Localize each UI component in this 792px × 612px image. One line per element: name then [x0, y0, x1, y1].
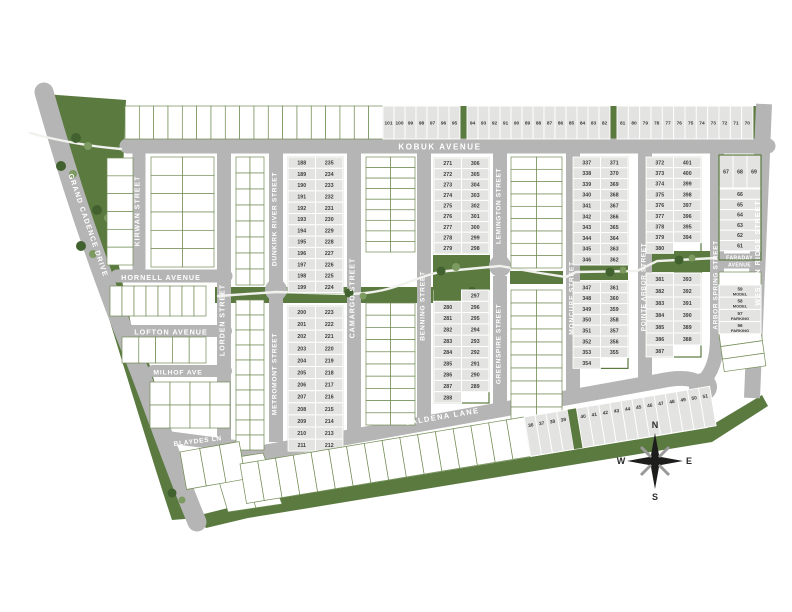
lot: [511, 394, 537, 407]
lot-use: PARKING: [731, 328, 749, 333]
street-label-dunkirk: DUNKIRK RIVER STREET: [272, 172, 279, 266]
lot: [366, 364, 391, 376]
lot-number: 230: [325, 217, 334, 223]
lot: [107, 194, 133, 212]
compass-w: W: [617, 456, 626, 466]
lot: [511, 303, 537, 316]
lot-number: 201: [297, 322, 306, 328]
lot-number: 351: [582, 329, 591, 335]
lot: [236, 330, 250, 345]
lot-number: 375: [655, 192, 664, 198]
lot: [240, 106, 254, 139]
lot: [250, 237, 264, 253]
lot-number: 208: [297, 407, 306, 413]
lot-number: 216: [325, 395, 334, 401]
unlabeled-block: [107, 158, 133, 265]
lot-number: 361: [610, 285, 619, 291]
unlabeled-block: [511, 290, 562, 420]
lot-number: 213: [325, 431, 334, 437]
lot: [107, 247, 133, 265]
lot-number: 202: [297, 334, 306, 340]
lot-number: 401: [683, 160, 692, 166]
block-metromont_camargo: 2002232012222022212032202042192052182062…: [288, 306, 343, 451]
lot-number: 193: [297, 217, 306, 223]
street-label-greenspire: GREENSPIRE STREET: [496, 304, 503, 384]
lot: [151, 175, 183, 193]
lot-number: 292: [471, 350, 480, 356]
lot-number: 272: [443, 172, 452, 178]
lot-number: 386: [655, 337, 664, 343]
lot-number: 66: [737, 192, 743, 198]
lot: [172, 337, 189, 363]
lot: [391, 303, 416, 315]
lot-number: 277: [443, 225, 452, 231]
lot: [236, 315, 250, 330]
lot: [107, 158, 133, 176]
lot-number: 288: [443, 395, 452, 401]
lot-use: MODEL: [733, 304, 748, 309]
lot-number: 61: [737, 244, 743, 250]
lot-number: 347: [582, 285, 591, 291]
block-kobuk-north: 1011009998979695949392919089888786858483…: [125, 106, 753, 139]
lot: [183, 212, 215, 230]
lot-number: 195: [297, 240, 306, 246]
lot: [511, 219, 537, 231]
lot-number: 190: [297, 183, 306, 189]
lot-number: 203: [297, 346, 306, 352]
lot: [182, 286, 194, 316]
lot-number: 82: [602, 121, 608, 127]
block-pointe_lower: 381393382392383391384390385389386388387: [646, 273, 701, 357]
lot: [366, 376, 391, 388]
lot-number: 280: [443, 305, 452, 311]
lot: [391, 241, 416, 252]
lot-number: 100: [395, 121, 403, 127]
lot-number: 306: [471, 161, 480, 167]
lot-number: 372: [655, 160, 664, 166]
street-label-kirwan: KIRWAN STREET: [135, 176, 142, 247]
lot-number: 81: [620, 121, 626, 127]
lot-number: 205: [297, 370, 306, 376]
lot-number: 291: [471, 361, 480, 367]
block-moncure_lower: 3473613483603493593503583513573523563533…: [573, 282, 628, 368]
lot: [250, 315, 264, 330]
lot: [537, 342, 563, 355]
lot-number: 350: [582, 318, 591, 324]
lot: [511, 182, 537, 194]
lot-number: 215: [325, 407, 334, 413]
lot-number: 229: [325, 228, 334, 234]
lot-number: 398: [683, 192, 692, 198]
lot-number: 373: [655, 171, 664, 177]
lot-number: 69: [751, 170, 757, 176]
lot: [511, 368, 537, 381]
lot: [250, 375, 264, 390]
lot: [150, 405, 170, 428]
lot: [511, 355, 537, 368]
lot: [250, 390, 264, 405]
lot-number: 225: [325, 274, 334, 280]
lot-number: 389: [683, 325, 692, 331]
block-benning_upper: 2713062723052733042743032753022763012773…: [434, 158, 489, 253]
lot-number: 191: [297, 194, 306, 200]
lot: [511, 157, 537, 169]
lot: [107, 212, 133, 230]
lot: [511, 381, 537, 394]
lot: [236, 157, 250, 173]
lot-number: 377: [655, 214, 664, 220]
lot-number: 379: [655, 235, 664, 241]
lot: [236, 360, 250, 375]
lot: [537, 231, 563, 243]
lot: [391, 364, 416, 376]
block-benning_lower: 2972802962812952822942832932842922852912…: [434, 290, 489, 403]
lot-number: 337: [582, 160, 591, 166]
lot-number: 387: [655, 349, 664, 355]
unlabeled-block: [122, 337, 206, 363]
lot: [511, 243, 537, 255]
street-label-metromont: METROMONT STREET: [272, 333, 279, 415]
lot: [366, 413, 391, 425]
lot-use: MODEL: [733, 291, 748, 296]
lot-number: 300: [471, 225, 480, 231]
lot: [511, 169, 537, 181]
lot-number: 287: [443, 384, 452, 390]
lot: [236, 300, 250, 315]
lot-number: 340: [582, 193, 591, 199]
lot-number: 79: [643, 121, 649, 127]
lot: [170, 286, 182, 316]
lot-number: 62: [737, 233, 743, 239]
lot: [170, 382, 190, 405]
lot-number: 80: [631, 121, 637, 127]
lot: [236, 375, 250, 390]
unlabeled-block: [110, 286, 206, 316]
lot-number: 88: [536, 121, 542, 127]
lot-number: 364: [610, 236, 619, 242]
lot: [366, 231, 391, 242]
lot: [183, 175, 215, 193]
lot: [537, 169, 563, 181]
lot: [537, 182, 563, 194]
lot-number: 223: [325, 310, 334, 316]
lot: [537, 194, 563, 206]
lot: [183, 157, 215, 175]
lot-number: 93: [481, 121, 487, 127]
lot-number: 382: [655, 289, 664, 295]
lot-number: 296: [471, 305, 480, 311]
lot: [236, 189, 250, 205]
lot-number: 298: [471, 246, 480, 252]
lot-number: 395: [683, 224, 692, 230]
lot: [151, 212, 183, 230]
unlabeled-block: [236, 157, 264, 285]
lot-number: 227: [325, 251, 334, 257]
lot-number: 84: [580, 121, 586, 127]
lot-number: 274: [443, 193, 452, 199]
lot: [391, 388, 416, 400]
lot-number: 342: [582, 214, 591, 220]
lot-number: 349: [582, 307, 591, 313]
lot: [511, 256, 537, 268]
lot-number: 87: [547, 121, 553, 127]
lot-number: 399: [683, 182, 692, 188]
lot: [537, 290, 563, 303]
street-label-weston_ridge: WESTON RIDGE STREET: [753, 200, 762, 306]
lot: [250, 405, 264, 420]
lot: [254, 106, 268, 139]
lot: [110, 286, 122, 316]
lot: [537, 381, 563, 394]
lot-number: 396: [683, 214, 692, 220]
lot-number: 98: [419, 121, 425, 127]
lot-number: 299: [471, 235, 480, 241]
lot-number: 366: [610, 214, 619, 220]
lot: [122, 286, 134, 316]
lot-number: 207: [297, 395, 306, 401]
lot: [134, 286, 146, 316]
lot-number: 281: [443, 316, 452, 322]
lot-number: 294: [471, 327, 480, 333]
lot: [326, 106, 340, 139]
lot: [391, 199, 416, 210]
lot-number: 95: [452, 121, 458, 127]
lot: [158, 286, 170, 316]
culdesac-dunkirk: [265, 279, 287, 301]
lot-number: 71: [733, 121, 739, 127]
lot: [139, 106, 153, 139]
lot: [366, 189, 391, 200]
lot: [391, 340, 416, 352]
lot-number: 72: [722, 121, 728, 127]
lot-number: 284: [443, 350, 452, 356]
unlabeled-block: [151, 157, 214, 267]
lot: [250, 435, 264, 450]
lot-number: 275: [443, 204, 452, 210]
lot: [537, 316, 563, 329]
lot: [391, 401, 416, 413]
lot-number: 297: [471, 294, 480, 300]
lot-number: 388: [683, 337, 692, 343]
lot: [391, 352, 416, 364]
compass-n: N: [652, 420, 659, 430]
lot: [366, 352, 391, 364]
lot: [268, 106, 282, 139]
lot: [366, 388, 391, 400]
lot-number: 235: [325, 161, 334, 167]
lot-number: 199: [297, 285, 306, 291]
lot-number: 63: [737, 223, 743, 229]
lot-number: 290: [471, 373, 480, 379]
lot: [122, 337, 139, 363]
street-label-arbor_spring: ARBOR SPRING STREET: [713, 240, 720, 329]
block-dunkirk_camargo: 1882351892341902331912321922311932301942…: [288, 157, 343, 293]
lot-number: 392: [683, 289, 692, 295]
lot-number: 302: [471, 204, 480, 210]
lot-number: 391: [683, 301, 692, 307]
lot-number: 206: [297, 383, 306, 389]
lot-number: 285: [443, 361, 452, 367]
lot: [236, 205, 250, 221]
lot: [283, 106, 297, 139]
lot-number: 271: [443, 161, 452, 167]
lot: [511, 231, 537, 243]
lot: [139, 337, 156, 363]
lot-number: 303: [471, 193, 480, 199]
lot-number: 390: [683, 313, 692, 319]
lot-number: 101: [384, 121, 392, 127]
lot-number: 89: [525, 121, 531, 127]
lot-number: 279: [443, 246, 452, 252]
lot: [537, 329, 563, 342]
lot: [391, 220, 416, 231]
lot-number: 345: [582, 247, 591, 253]
lot: [250, 345, 264, 360]
lot-number: 358: [610, 318, 619, 324]
lot: [511, 316, 537, 329]
lot-number: 400: [683, 171, 692, 177]
lot: [107, 229, 133, 247]
lot-number: 367: [610, 204, 619, 210]
lot-number: 362: [610, 258, 619, 264]
lot: [511, 342, 537, 355]
lot: [236, 405, 250, 420]
lot: [511, 290, 537, 303]
lot: [154, 106, 168, 139]
lot: [537, 219, 563, 231]
street-label-lofton: LOFTON AVENUE: [134, 328, 208, 337]
lot: [151, 157, 183, 175]
street-label-moncure: MONCURE STREET: [569, 261, 576, 335]
lot: [151, 249, 183, 267]
lot-number: 83: [591, 121, 597, 127]
lot-number: 211: [298, 443, 306, 449]
lot-number: 273: [443, 182, 452, 188]
lot-number: 380: [655, 246, 664, 252]
lot: [537, 256, 563, 268]
lot-number: 78: [654, 121, 660, 127]
lot-number: 75: [688, 121, 694, 127]
unlabeled-block: [366, 303, 415, 425]
block-pointe_upper: 3724013734003743993753983763973773963783…: [646, 157, 701, 253]
lot-number: 352: [582, 339, 591, 345]
lot: [190, 382, 210, 405]
street-label-hornell: HORNELL AVENUE: [121, 273, 201, 282]
site-plan: 1882351892341902331912321922311932301942…: [0, 0, 792, 612]
street-label-lorden: LORDEN STREET: [220, 284, 227, 356]
lot-number: 198: [297, 274, 306, 280]
lot: [236, 237, 250, 253]
lot: [183, 194, 215, 212]
lot-number: 218: [325, 370, 334, 376]
lot: [183, 230, 215, 248]
lot-number: 346: [582, 258, 591, 264]
lot-number: 228: [325, 240, 334, 246]
lot: [250, 253, 264, 269]
lot: [250, 300, 264, 315]
lot: [236, 390, 250, 405]
lot-number: 214: [325, 419, 334, 425]
lot-number: 378: [655, 224, 664, 230]
street-label-milhof: MILHOF AVE: [153, 370, 202, 377]
lot-number: 348: [582, 296, 591, 302]
lot: [537, 206, 563, 218]
lot-number: 355: [610, 350, 619, 356]
lot-number: 301: [471, 214, 480, 220]
lot-number: 232: [325, 194, 334, 200]
lot-number: 293: [471, 339, 480, 345]
lot: [369, 106, 383, 139]
lot-number: 94: [470, 121, 476, 127]
lot-number: 91: [503, 121, 509, 127]
lot: [391, 376, 416, 388]
lot-number: 370: [610, 171, 619, 177]
lot-number: 363: [610, 247, 619, 253]
street-label-benning: BENNING STREET: [420, 271, 427, 341]
street-label-camargo: CAMARGO STREET: [350, 258, 357, 339]
lot: [236, 420, 250, 435]
street-label-lemington: LEMINGTON STREET: [496, 168, 503, 244]
lot-number: 343: [582, 225, 591, 231]
lot-number: 85: [569, 121, 575, 127]
street-label-kobuk: KOBUK AVENUE: [398, 143, 481, 152]
lot-number: 278: [443, 235, 452, 241]
lot-number: 354: [582, 361, 591, 367]
lot: [250, 330, 264, 345]
lot-number: 221: [325, 334, 334, 340]
lot-number: 194: [297, 228, 306, 234]
lot-number: 68: [737, 170, 743, 176]
lot-number: 397: [683, 203, 692, 209]
lot: [225, 106, 239, 139]
lot-number: 338: [582, 171, 591, 177]
lot: [250, 173, 264, 189]
lot: [236, 253, 250, 269]
lot: [391, 189, 416, 200]
lot-number: 341: [582, 204, 591, 210]
lot-use: PARKING: [731, 316, 749, 321]
lot: [391, 157, 416, 168]
lot-number: 365: [610, 225, 619, 231]
lot-number: 286: [443, 373, 452, 379]
lot: [250, 221, 264, 237]
lot: [151, 194, 183, 212]
lot: [366, 220, 391, 231]
lot-number: 234: [325, 172, 334, 178]
lot: [182, 106, 196, 139]
lot-number: 289: [471, 384, 480, 390]
lot: [366, 157, 391, 168]
lot: [391, 168, 416, 179]
lot-number: 196: [297, 251, 306, 257]
lot: [250, 157, 264, 173]
lot-number: 197: [297, 262, 306, 268]
lot: [366, 199, 391, 210]
unlabeled-block: [366, 157, 415, 252]
lot: [366, 178, 391, 189]
lot: [250, 360, 264, 375]
lot-number: 74: [699, 121, 705, 127]
lot-number: 371: [610, 160, 619, 166]
lot: [537, 303, 563, 316]
lot: [168, 106, 182, 139]
lot: [197, 106, 211, 139]
lot: [236, 221, 250, 237]
lot: [236, 345, 250, 360]
lot-number: 384: [655, 313, 664, 319]
lot-number: 224: [325, 285, 334, 291]
lot: [150, 382, 170, 405]
